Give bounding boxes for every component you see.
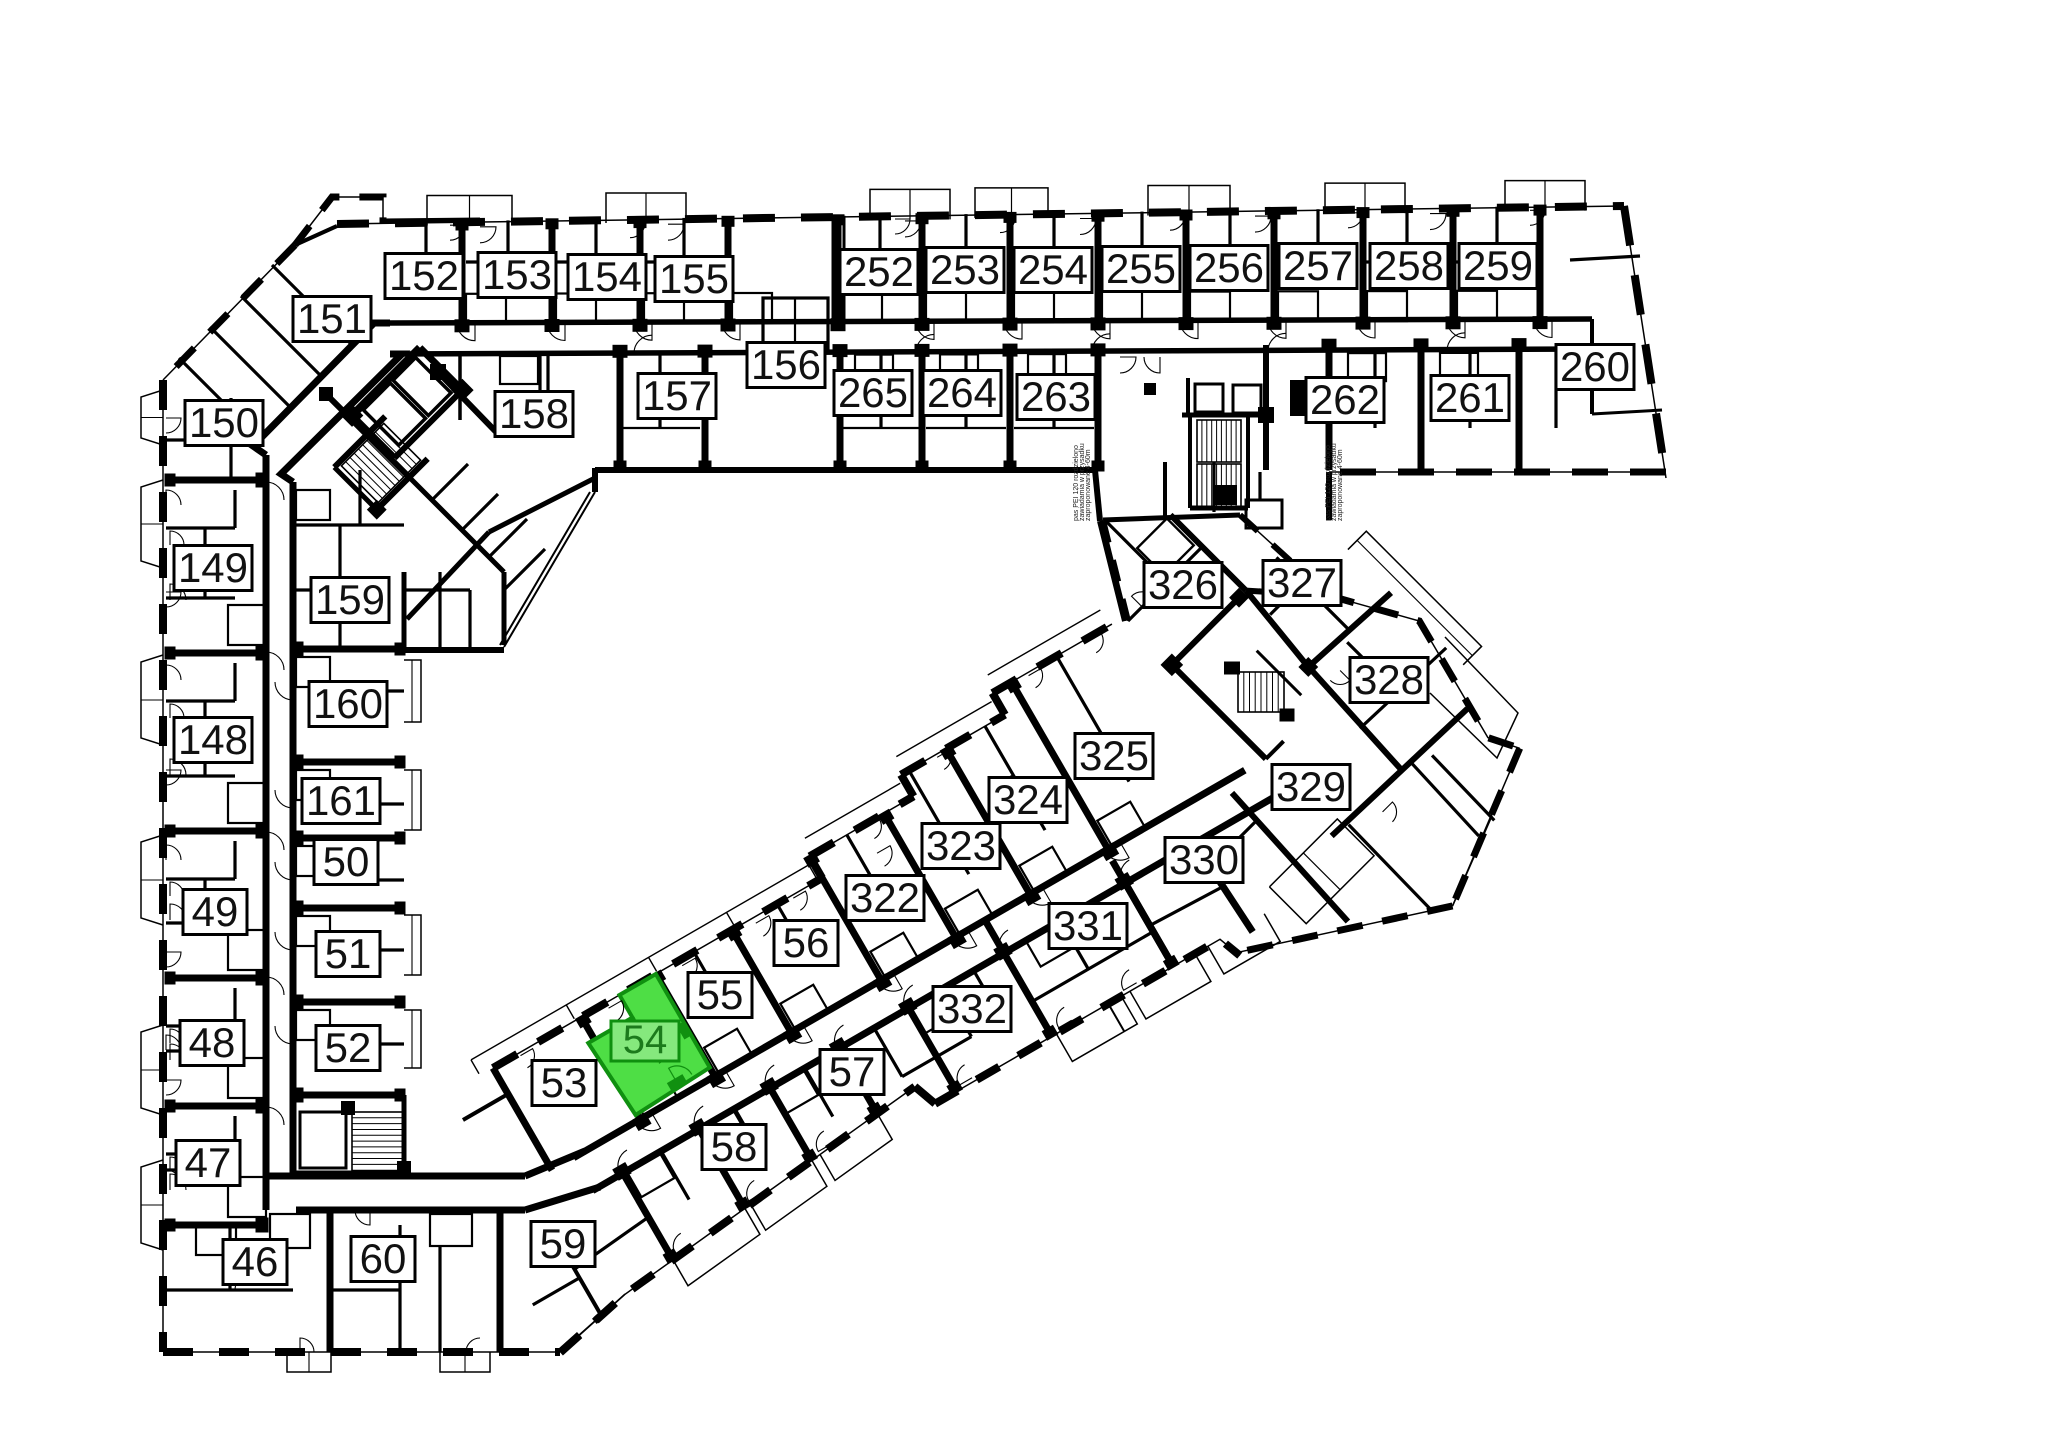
svg-text:49: 49 <box>192 888 239 935</box>
svg-text:326: 326 <box>1148 561 1218 608</box>
svg-text:52: 52 <box>325 1024 372 1071</box>
svg-text:253: 253 <box>930 246 1000 293</box>
svg-text:328: 328 <box>1354 656 1424 703</box>
svg-text:331: 331 <box>1053 902 1123 949</box>
svg-text:325: 325 <box>1079 732 1149 779</box>
svg-text:256: 256 <box>1194 244 1264 291</box>
svg-text:159: 159 <box>315 576 385 623</box>
svg-text:57: 57 <box>829 1048 876 1095</box>
svg-text:154: 154 <box>572 253 642 300</box>
svg-text:50: 50 <box>323 838 370 885</box>
svg-text:56: 56 <box>783 919 830 966</box>
svg-text:257: 257 <box>1283 242 1353 289</box>
svg-text:330: 330 <box>1169 836 1239 883</box>
svg-text:262: 262 <box>1310 376 1380 423</box>
svg-text:252: 252 <box>844 248 914 295</box>
svg-text:51: 51 <box>325 930 372 977</box>
svg-text:322: 322 <box>850 874 920 921</box>
svg-text:58: 58 <box>711 1123 758 1170</box>
svg-text:151: 151 <box>297 295 367 342</box>
svg-text:59: 59 <box>540 1220 587 1267</box>
svg-text:60: 60 <box>360 1235 407 1282</box>
svg-text:53: 53 <box>541 1059 588 1106</box>
svg-text:254: 254 <box>1018 246 1088 293</box>
svg-text:265: 265 <box>838 369 908 416</box>
svg-text:264: 264 <box>927 369 997 416</box>
svg-text:zaproponowane 4-60m: zaproponowane 4-60m <box>1337 449 1344 521</box>
svg-text:48: 48 <box>189 1019 236 1066</box>
svg-text:261: 261 <box>1435 374 1505 421</box>
svg-text:54: 54 <box>623 1018 668 1062</box>
svg-text:150: 150 <box>189 399 259 446</box>
svg-text:157: 157 <box>642 372 712 419</box>
svg-text:160: 160 <box>313 680 383 727</box>
svg-text:152: 152 <box>389 252 459 299</box>
svg-text:161: 161 <box>306 777 376 824</box>
svg-text:259: 259 <box>1463 242 1533 289</box>
svg-text:47: 47 <box>185 1139 232 1186</box>
svg-text:255: 255 <box>1106 245 1176 292</box>
svg-text:323: 323 <box>926 822 996 869</box>
svg-text:327: 327 <box>1267 559 1337 606</box>
svg-text:332: 332 <box>937 985 1007 1032</box>
svg-text:324: 324 <box>993 776 1063 823</box>
svg-text:258: 258 <box>1374 242 1444 289</box>
svg-text:zaproponowane 4-60m: zaproponowane 4-60m <box>1085 449 1092 521</box>
svg-text:156: 156 <box>751 341 821 388</box>
svg-text:155: 155 <box>659 255 729 302</box>
svg-text:46: 46 <box>232 1238 279 1285</box>
svg-text:148: 148 <box>178 716 248 763</box>
svg-text:153: 153 <box>482 251 552 298</box>
svg-text:149: 149 <box>178 544 248 591</box>
svg-text:329: 329 <box>1276 763 1346 810</box>
svg-text:158: 158 <box>499 390 569 437</box>
svg-text:55: 55 <box>697 971 744 1018</box>
svg-text:260: 260 <box>1560 343 1630 390</box>
svg-text:263: 263 <box>1021 373 1091 420</box>
